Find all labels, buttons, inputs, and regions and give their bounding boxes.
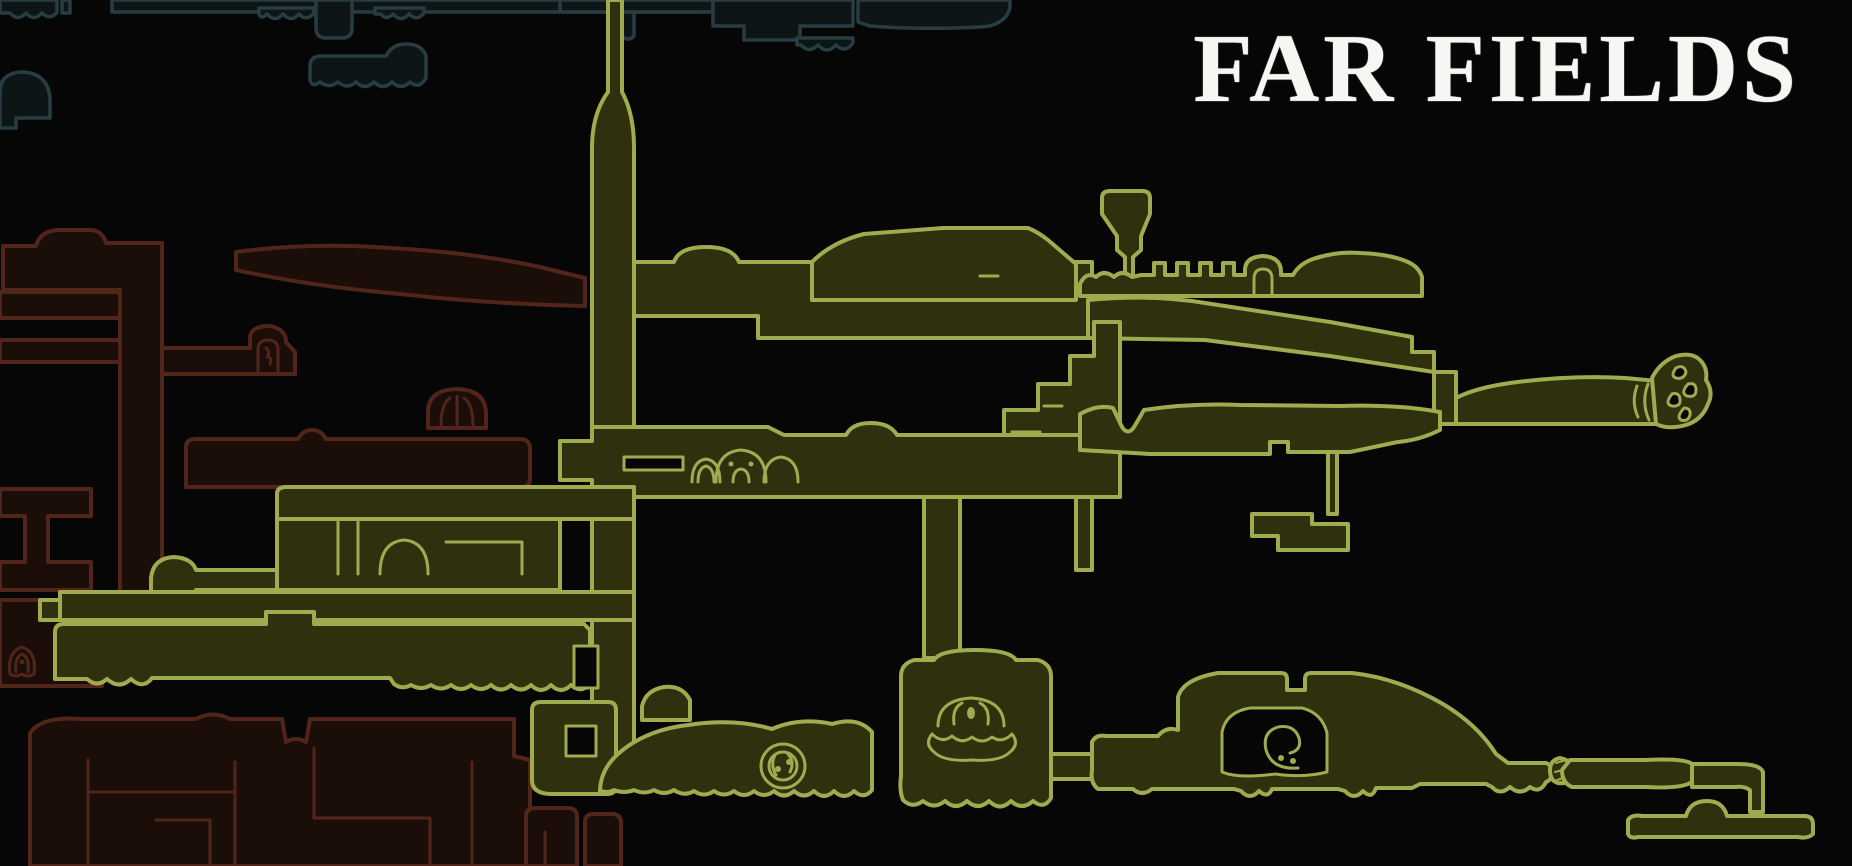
- map-room-arm: [1456, 377, 1658, 424]
- map-room: [560, 0, 713, 12]
- caterpillar-eye: [749, 462, 754, 467]
- map-room: [186, 430, 530, 487]
- map-room: [316, 0, 352, 38]
- map-room: [1088, 298, 1434, 372]
- map-room: [713, 0, 853, 40]
- map-room: [375, 8, 424, 19]
- curled-creature-dot: [1278, 755, 1284, 761]
- map-room: [924, 497, 960, 658]
- spiral-wheel-dot: [786, 759, 792, 765]
- map-room: [585, 814, 621, 866]
- map-room: [259, 8, 314, 19]
- map-room: [0, 0, 57, 18]
- map-room: [30, 715, 530, 866]
- map-room-platform: [1628, 801, 1813, 838]
- caterpillar-eye: [729, 462, 734, 467]
- map-room-goblet: [1102, 191, 1150, 276]
- map-room: [162, 326, 295, 374]
- map-room-drop: [1328, 452, 1337, 514]
- map-room: [1076, 497, 1092, 570]
- map-room: [40, 600, 60, 620]
- small-bell-dot: [20, 660, 25, 665]
- map-room: [277, 487, 634, 519]
- map-room: [526, 808, 577, 866]
- map-room: [0, 489, 91, 590]
- clam-shell-eye: [967, 707, 975, 719]
- map-room: [797, 38, 853, 50]
- map-room: [812, 228, 1076, 300]
- world-map-canvas[interactable]: [0, 0, 1852, 866]
- map-room: [0, 72, 50, 128]
- map-screen: FAR FIELDS: [0, 0, 1852, 866]
- map-room: [310, 44, 426, 87]
- map-room: [0, 340, 120, 362]
- map-room: [1051, 754, 1092, 779]
- room-window: [566, 726, 596, 756]
- map-room: [60, 592, 634, 620]
- map-room: [642, 687, 690, 720]
- map-room-mound: [600, 721, 872, 796]
- map-room: [858, 0, 1010, 28]
- curled-creature-dot: [1290, 758, 1296, 764]
- map-room: [236, 246, 585, 306]
- far-fields-rooms: [40, 0, 1813, 838]
- map-room: [55, 612, 590, 690]
- floor-slot: [624, 457, 683, 470]
- map-room-chamber: [900, 650, 1051, 807]
- cave-window: [1222, 708, 1327, 776]
- map-room: [1562, 760, 1692, 788]
- north-region-rooms: [0, 0, 1010, 128]
- map-room: [62, 0, 70, 13]
- map-room: [0, 292, 120, 318]
- map-room: [1252, 514, 1348, 550]
- room-window: [574, 646, 598, 688]
- area-title: FAR FIELDS: [1193, 20, 1800, 117]
- map-room: [1080, 405, 1440, 454]
- spiral-wheel-dot: [775, 766, 781, 772]
- map-room: [277, 519, 560, 590]
